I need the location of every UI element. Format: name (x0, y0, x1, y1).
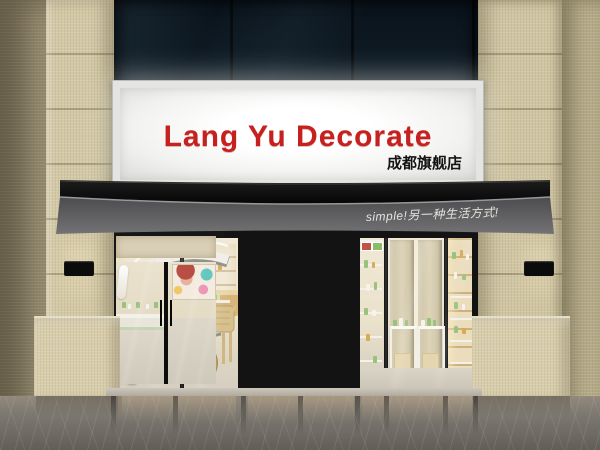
window-mullion (384, 238, 388, 388)
product-bottle (462, 304, 465, 310)
product-bottle (366, 284, 370, 291)
product-bottle (460, 250, 463, 258)
signboard: Lang Yu Decorate 成都旗舰店 (112, 80, 484, 188)
floor-reflection (362, 396, 472, 422)
product-bottle (372, 310, 376, 316)
hanging-decor (116, 265, 129, 300)
product-bottle (462, 328, 466, 334)
floor-reflection (355, 396, 360, 442)
product-bottle (462, 274, 466, 280)
street-floor (0, 396, 600, 450)
product-bottle (146, 304, 149, 309)
floor-reflection (173, 396, 178, 442)
product-bottle (454, 326, 458, 333)
product-bottle (364, 260, 368, 268)
product-bottle (372, 262, 375, 268)
floor-reflection (111, 396, 116, 442)
interior-floor (360, 368, 472, 388)
product-bottle (454, 272, 457, 279)
signboard-lightbox: Lang Yu Decorate 成都旗舰店 (120, 88, 476, 180)
door-handle (160, 300, 162, 326)
store-branch-label: 成都旗舰店 (387, 152, 462, 173)
product-bottle (427, 318, 431, 326)
floor-reflection (384, 396, 389, 442)
brand-sign (361, 242, 372, 251)
product-bottle (452, 252, 456, 259)
product-bottle (373, 356, 377, 363)
door-center-stile (164, 262, 168, 384)
product-bottle (122, 302, 126, 308)
product-bottle (374, 282, 377, 290)
wall-lamp-left (64, 261, 94, 276)
door-left-pane (116, 262, 164, 384)
door-handle (170, 300, 172, 326)
product-bottle (128, 304, 131, 309)
right-column-pedestal (472, 316, 570, 400)
store-name: Lang Yu Decorate (120, 120, 476, 154)
storefront-scene: Lang Yu Decorate 成都旗舰店 simple!另一种生活方式! (0, 0, 600, 450)
awning: simple!另一种生活方式! (58, 180, 552, 240)
product-bottle (136, 302, 140, 308)
floor-reflection (473, 396, 478, 442)
interior-floor (116, 330, 164, 384)
beauty-poster (172, 264, 216, 300)
interior-floor (168, 318, 216, 384)
product-bottle (154, 302, 158, 308)
floor-reflection (474, 396, 570, 416)
product-bottle (466, 254, 469, 260)
floor-reflection (241, 396, 246, 442)
display-counter (116, 314, 164, 330)
wall-lamp-right (524, 261, 554, 276)
floor-reflection (443, 396, 448, 442)
product-bottle (364, 308, 368, 315)
product-bottle (399, 318, 403, 326)
product-bottle (366, 334, 370, 341)
brand-sign (372, 242, 383, 251)
floor-reflection (298, 396, 303, 442)
storefront-frame (108, 230, 482, 400)
right-display-window (360, 238, 472, 388)
product-bottle (454, 302, 458, 309)
door-right-pane (168, 262, 216, 384)
floor-reflection (36, 396, 122, 416)
entrance-door-assembly (108, 230, 224, 394)
